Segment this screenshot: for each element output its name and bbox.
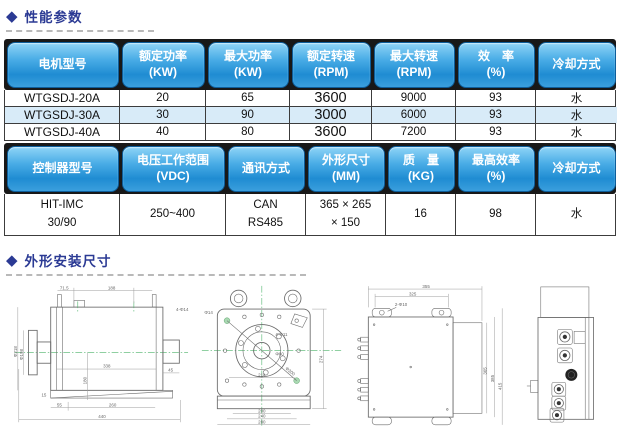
controller-end-view-drawing [513,282,613,427]
cell-efficiency: 93 [456,107,536,123]
cell-mass: 16 [386,194,456,235]
dim-label: 260 [109,402,117,407]
table-row: WTGSDJ-20A 20 65 3600 9000 93 水 [5,90,615,107]
header-max-power: 最大功率 (KW) [208,42,289,88]
datasheet-page: ◆ 性能参数 电机型号 额定功率 (KW) 最大功率 (KW) 额定转速 (RP… [0,0,620,438]
dashed-divider [6,274,306,276]
cell-voltage-range: 250~400 [120,194,226,235]
header-rated-power: 额定功率 (KW) [122,42,205,88]
dashed-divider [6,30,154,32]
dim-label: 15 [41,393,46,398]
diamond-icon: ◆ [6,253,18,268]
cell-communication: CAN RS485 [226,194,306,235]
dim-label: Φ198 [19,349,24,360]
cell-outline-size: 365 × 265 × 150 [306,194,386,235]
section-title-dimensions: 外形安装尺寸 [25,250,112,270]
header-voltage-range: 电压工作范围 (VDC) [122,146,225,192]
header-max-speed: 最大转速 (RPM) [374,42,455,88]
cell-model: WTGSDJ-20A [5,90,120,106]
dim-label: 2-Φ10 [395,302,408,307]
header-efficiency: 效 率 (%) [458,42,535,88]
dim-label: 55 [57,402,62,407]
cell-max-power: 65 [206,90,290,106]
cell-rated-speed: 3000 [290,107,372,123]
cell-max-speed: 6000 [372,107,456,123]
table-row: WTGSDJ-30A 30 90 3000 6000 93 水 [5,107,615,124]
controller-table-body: HIT-IMC 30/90 250~400 CAN RS485 365 × 26… [4,194,616,236]
cell-max-speed: 7200 [372,124,456,140]
cell-peak-efficiency: 98 [456,194,536,235]
controller-side-view-drawing: 355 325 2-Φ10 365 385 415 [351,282,507,429]
cell-rated-speed: 3600 [290,124,372,140]
motor-table-header-row: 电机型号 额定功率 (KW) 最大功率 (KW) 额定转速 (RPM) 最大转速… [4,39,616,90]
controller-table-header-row: 控制器型号 电压工作范围 (VDC) 通讯方式 外形尺寸 (MM) 质 量 (K… [4,143,616,194]
dim-label: 71.5 [60,285,69,290]
dim-label: Φ218 [13,346,18,357]
dim-label: 4-Φ11 [275,332,288,337]
dim-label: 214 [258,372,266,377]
cell-rated-speed: 3600 [290,90,372,106]
dim-label: 188 [108,285,116,290]
cell-model: WTGSDJ-30A [5,107,120,123]
header-controller-model: 控制器型号 [7,146,119,192]
cell-efficiency: 93 [456,124,536,140]
cell-cooling: 水 [536,194,617,235]
header-cooling: 冷却方式 [538,42,616,88]
dim-label: 180 [82,376,87,384]
header-communication: 通讯方式 [228,146,305,192]
dim-label: 415 [498,382,503,390]
cell-cooling: 水 [536,107,617,123]
cell-controller-model: HIT-IMC 30/90 [5,194,120,235]
dim-label: 355 [422,284,430,289]
cell-rated-power: 40 [120,124,206,140]
dim-label: 45 [168,367,173,372]
cell-max-power: 80 [206,124,290,140]
dim-label: Φ14 [204,310,213,315]
motor-table-body: WTGSDJ-20A 20 65 3600 9000 93 水 WTGSDJ-3… [4,90,616,141]
cell-model: WTGSDJ-40A [5,124,120,140]
cell-cooling: 水 [536,90,617,106]
motor-front-view-drawing: Φ14 4-Φ11 Φ80 Φ300 214 274 200 240 280 [198,282,345,429]
dim-label: 274 [319,355,324,363]
dim-label: 280 [258,419,266,424]
dim-label: 200 [258,408,266,413]
dim-label: Φ80 [275,352,284,357]
table-row: HIT-IMC 30/90 250~400 CAN RS485 365 × 26… [5,194,615,235]
header-outline-size: 外形尺寸 (MM) [308,146,385,192]
dim-label: 338 [103,364,111,369]
dim-label: 365 [482,367,487,375]
cell-cooling: 水 [536,124,617,140]
table-row: WTGSDJ-40A 40 80 3600 7200 93 水 [5,124,615,140]
header-rated-speed: 额定转速 (RPM) [292,42,371,88]
cell-rated-power: 30 [120,107,206,123]
installation-drawings: 71.5 188 4-Φ14 Φ218 Φ198 338 180 45 15 5… [10,282,620,429]
dim-label: 440 [98,414,106,419]
motor-spec-table: 电机型号 额定功率 (KW) 最大功率 (KW) 额定转速 (RPM) 最大转速… [4,39,616,141]
cell-max-speed: 9000 [372,90,456,106]
header-mass: 质 量 (KG) [388,146,455,192]
header-cooling: 冷却方式 [538,146,616,192]
header-motor-model: 电机型号 [7,42,119,88]
dim-label: 240 [258,414,266,419]
dim-label: 385 [490,374,495,382]
cell-rated-power: 20 [120,90,206,106]
controller-spec-table: 控制器型号 电压工作范围 (VDC) 通讯方式 外形尺寸 (MM) 质 量 (K… [4,143,616,236]
diamond-icon: ◆ [6,9,18,24]
cell-max-power: 90 [206,107,290,123]
dim-label: 4-Φ14 [176,307,189,312]
header-peak-efficiency: 最高效率 (%) [458,146,535,192]
cell-efficiency: 93 [456,90,536,106]
section-performance: ◆ 性能参数 [6,6,620,32]
section-title-performance: 性能参数 [25,6,83,26]
motor-side-view-drawing: 71.5 188 4-Φ14 Φ218 Φ198 338 180 45 15 5… [10,282,192,429]
dim-label: 325 [409,292,417,297]
section-dimensions: ◆ 外形安装尺寸 [6,250,620,276]
